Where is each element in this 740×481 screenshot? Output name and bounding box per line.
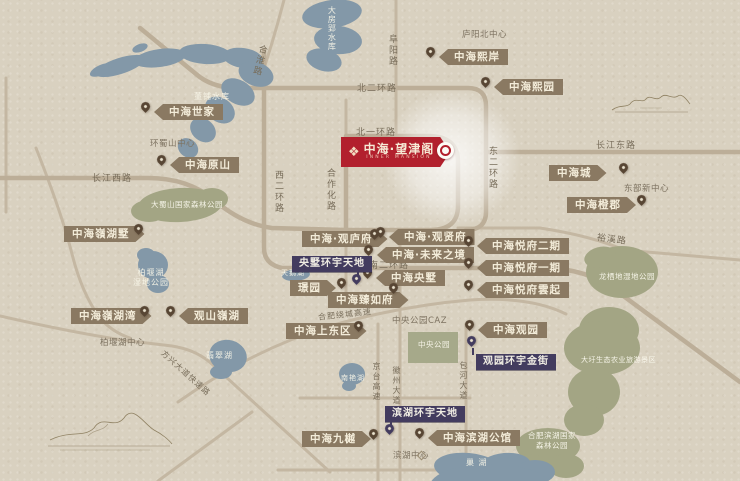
- poi-yuefu-1[interactable]: 中海悦府一期: [477, 260, 569, 276]
- poi-zhenrufu[interactable]: 中海臻如府: [328, 292, 409, 308]
- road-dong-erhuan: 东二环路: [486, 146, 499, 190]
- district-baiyanhu-center: 柏堰湖中心: [100, 336, 145, 348]
- poi-yangshu[interactable]: 中海央墅: [376, 270, 445, 286]
- poi-chengjun[interactable]: 中海橙郡: [567, 197, 636, 213]
- park-binhu-forest: 合肥滨湖国家 森林公园: [528, 431, 576, 451]
- hero-project-badge[interactable]: ❖ 中海·望津阁 INNER MANSION: [341, 137, 450, 167]
- district-central-park-caz: 中央公园CAZ: [392, 314, 447, 326]
- park-longqidi: 龙栖地湿地公园: [599, 272, 655, 282]
- poi-weilaizhijing[interactable]: 中海·未来之境: [377, 247, 474, 263]
- brand-rosette-icon: ❖: [348, 146, 360, 159]
- poi-shijia[interactable]: 中海世家: [154, 104, 223, 120]
- project-location-marker[interactable]: [437, 142, 454, 159]
- road-bei-yihuan: 北一环路: [356, 125, 396, 138]
- poi-xiyuan[interactable]: 中海熙园: [494, 79, 563, 95]
- location-map: 长江西路 北二环路 北一环路 合淮路 阜阳路 西二环路 合作化路 东二环路 长江…: [0, 0, 740, 481]
- poi-binhu-huanyu-tiandi[interactable]: 滨湖环宇天地: [385, 406, 465, 422]
- poi-guanyuan[interactable]: 中海观园: [478, 322, 547, 338]
- poi-yuanshan[interactable]: 中海原山: [170, 157, 239, 173]
- poi-yuefu-2[interactable]: 中海悦府二期: [477, 238, 569, 254]
- road-bei-erhuan: 北二环路: [357, 81, 397, 94]
- poi-jiuyue[interactable]: 中海九樾: [302, 431, 371, 447]
- poi-yuefu-yunqi[interactable]: 中海悦府雲起: [477, 282, 569, 298]
- road-changjiang-west: 长江西路: [92, 171, 132, 184]
- road-xi-erhuan: 西二环路: [272, 170, 285, 214]
- road-changjiang-east: 长江东路: [596, 138, 636, 151]
- poi-cheng[interactable]: 中海城: [549, 165, 607, 181]
- park-daxu-agritourism: 大圩生态农业旅游景区: [581, 356, 656, 365]
- park-central: 中央公园: [418, 340, 450, 350]
- hero-project-subtitle: INNER MANSION: [366, 156, 431, 161]
- park-dashushan: 大蜀山国家森林公园: [151, 200, 223, 210]
- district-luyang-north: 庐阳北中心: [462, 28, 507, 40]
- poi-xian[interactable]: 中海熙岸: [439, 49, 508, 65]
- water-chao-lake: 巢 湖: [466, 458, 488, 468]
- district-huanshushan: 环蜀山中心: [150, 137, 195, 149]
- road-fuyang: 阜阳路: [386, 34, 399, 67]
- road-jingtai-expwy: 京台高速: [371, 362, 382, 402]
- water-baiyan-lake-park: 柏堰湖 湿地公园: [133, 268, 169, 289]
- poi-linghushu[interactable]: 中海嶺湖墅: [64, 226, 145, 242]
- road-baohe-ave: 包河大道: [458, 361, 469, 401]
- water-dongpu-reservoir: 董铺水库: [194, 92, 230, 102]
- district-east-new-center: 东部新中心: [624, 182, 669, 194]
- poi-guanshan-linghu[interactable]: 观山嶺湖: [179, 308, 248, 324]
- poi-yangshu-huanyu-tiandi[interactable]: 央墅环宇天地: [292, 256, 372, 272]
- pin-stem: [472, 348, 474, 355]
- road-huizhou-ave: 徽州大道: [391, 366, 402, 406]
- water-feicui-lake: 翡翠湖: [206, 351, 233, 361]
- poi-guanyuan-huanyu-jinjie[interactable]: 观园环宇金街: [476, 354, 556, 370]
- water-nanyan-lake: 南艳湖: [341, 374, 365, 383]
- poi-guanxianfu[interactable]: 中海·观贤府: [389, 229, 475, 245]
- water-dafangying-reservoir: 大房郢水库: [326, 6, 336, 51]
- poi-binhu-gongguan[interactable]: 中海滨湖公馆: [428, 430, 520, 446]
- road-hezuohua: 合作化路: [324, 168, 337, 212]
